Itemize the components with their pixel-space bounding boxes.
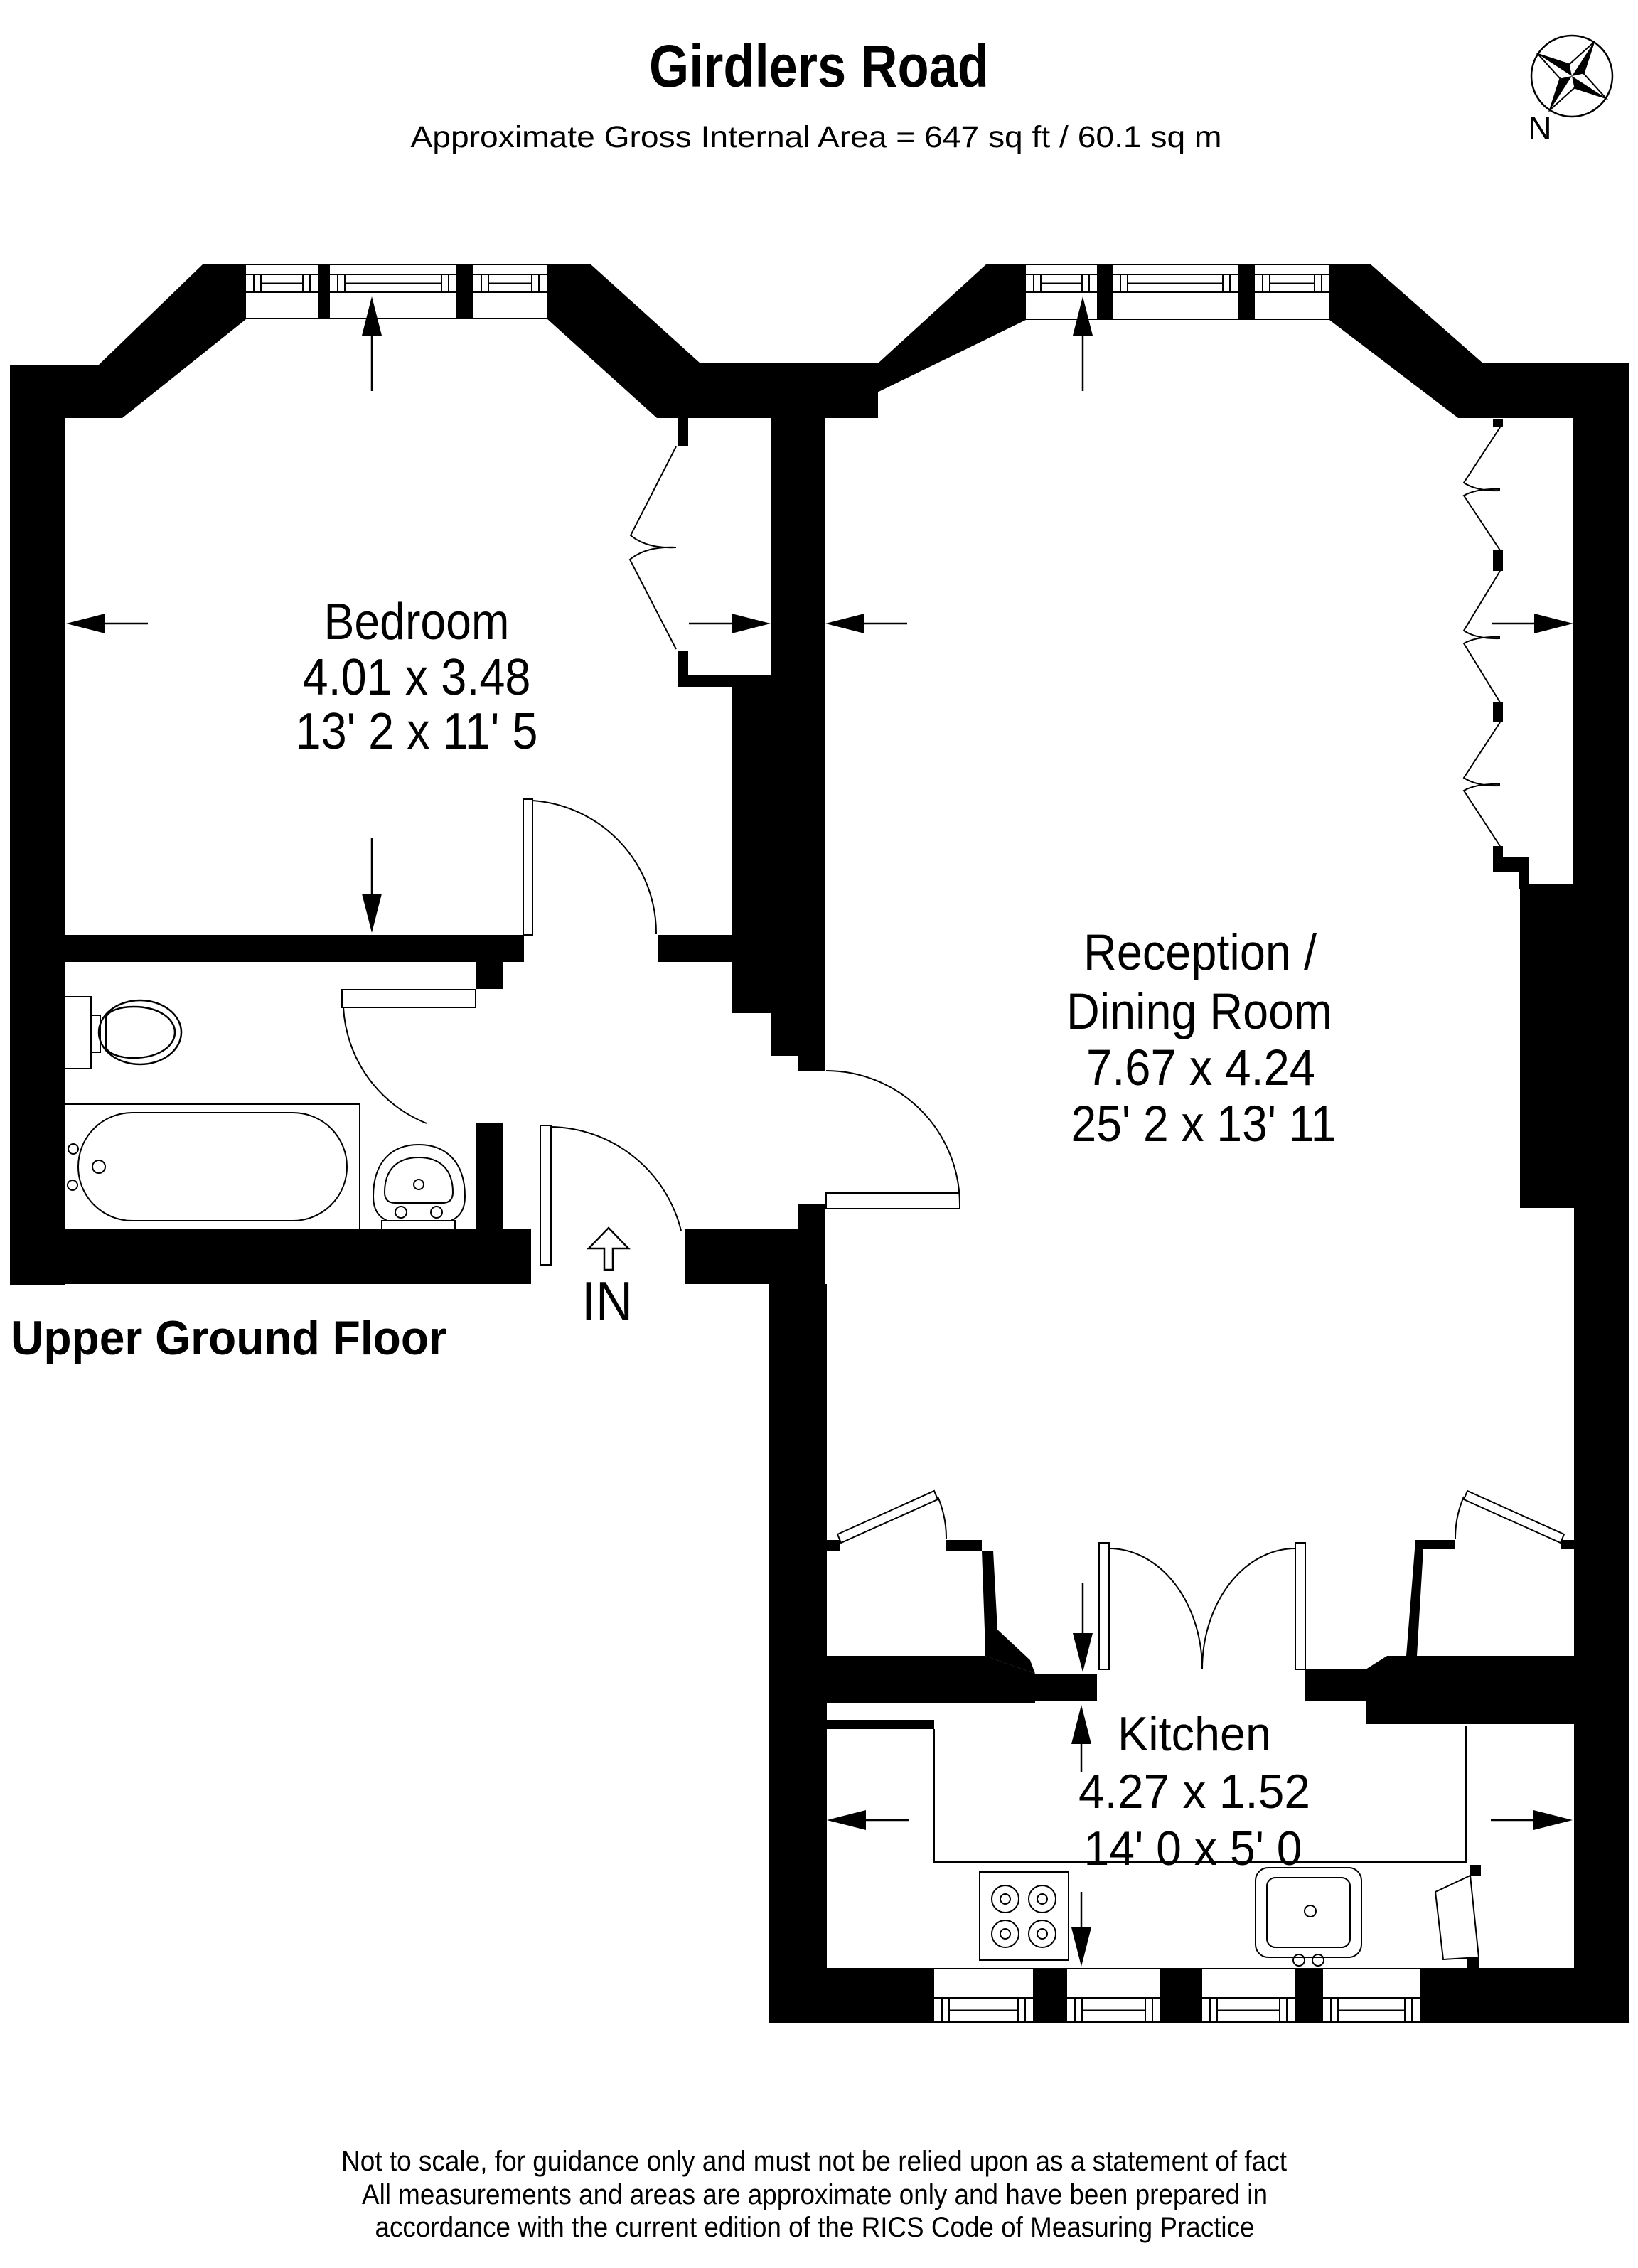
svg-text:25' 2 x 13' 11: 25' 2 x 13' 11	[1071, 1096, 1337, 1152]
svg-text:Bedroom: Bedroom	[324, 594, 510, 651]
svg-text:Upper Ground Floor: Upper Ground Floor	[11, 1311, 446, 1365]
svg-text:accordance with the current ed: accordance with the current edition of t…	[375, 2212, 1255, 2243]
svg-text:Kitchen: Kitchen	[1118, 1707, 1271, 1761]
svg-text:4.01 x 3.48: 4.01 x 3.48	[303, 649, 531, 706]
svg-text:Girdlers Road: Girdlers Road	[649, 33, 989, 100]
svg-text:IN: IN	[582, 1270, 633, 1332]
svg-text:N: N	[1528, 109, 1551, 146]
svg-text:14' 0 x 5' 0: 14' 0 x 5' 0	[1084, 1822, 1302, 1876]
svg-text:All measurements and areas are: All measurements and areas are approxima…	[362, 2179, 1268, 2210]
svg-text:4.27 x 1.52: 4.27 x 1.52	[1078, 1765, 1310, 1819]
svg-text:13' 2 x 11' 5: 13' 2 x 11' 5	[296, 703, 538, 760]
svg-text:Dining Room: Dining Room	[1066, 984, 1332, 1040]
svg-text:Approximate Gross Internal Are: Approximate Gross Internal Area = 647 sq…	[411, 120, 1222, 154]
svg-text:Not to scale, for guidance onl: Not to scale, for guidance only and must…	[341, 2146, 1287, 2177]
svg-text:Reception /: Reception /	[1083, 925, 1317, 981]
svg-text:7.67 x 4.24: 7.67 x 4.24	[1086, 1040, 1315, 1096]
